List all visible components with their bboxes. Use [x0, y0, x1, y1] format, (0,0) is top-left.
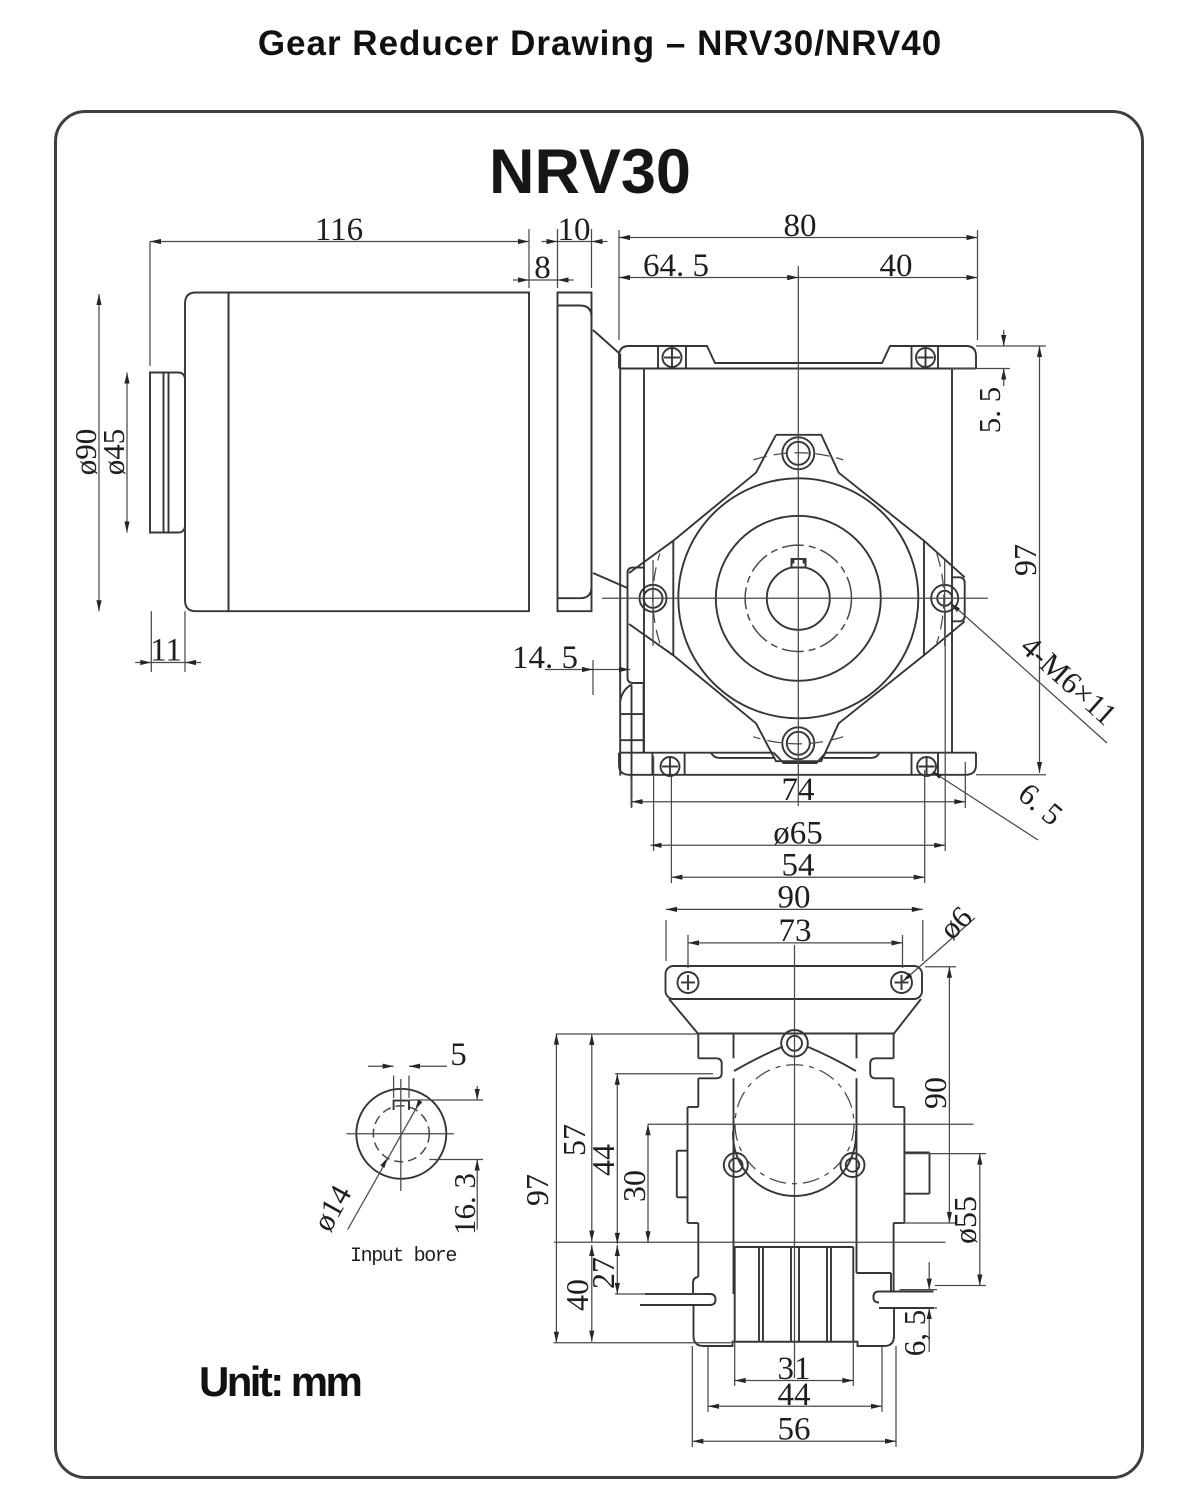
- svg-text:90: 90: [917, 1077, 953, 1109]
- svg-text:6, 5: 6, 5: [897, 1310, 932, 1357]
- svg-text:16. 3: 16. 3: [447, 1173, 482, 1235]
- svg-text:ø55: ø55: [947, 1196, 983, 1244]
- svg-text:Input bore: Input bore: [350, 1245, 456, 1268]
- svg-text:8: 8: [534, 250, 551, 286]
- svg-text:116: 116: [315, 212, 363, 248]
- svg-text:44: 44: [778, 1377, 811, 1413]
- svg-text:97: 97: [519, 1174, 555, 1206]
- svg-text:40: 40: [880, 248, 913, 284]
- svg-text:97: 97: [1007, 544, 1043, 576]
- svg-text:64. 5: 64. 5: [643, 248, 709, 284]
- svg-text:30: 30: [616, 1170, 652, 1202]
- svg-text:5: 5: [450, 1037, 467, 1073]
- svg-text:ø65: ø65: [773, 816, 823, 852]
- svg-text:54: 54: [782, 848, 815, 884]
- svg-text:5. 5: 5. 5: [972, 387, 1007, 434]
- svg-text:74: 74: [782, 772, 815, 808]
- svg-text:10: 10: [558, 212, 591, 248]
- svg-text:14. 5: 14. 5: [512, 640, 578, 676]
- svg-text:ø45: ø45: [96, 429, 131, 476]
- svg-text:80: 80: [784, 208, 817, 244]
- svg-text:56: 56: [778, 1412, 811, 1448]
- svg-text:90: 90: [778, 880, 811, 916]
- svg-text:73: 73: [779, 913, 812, 949]
- svg-text:11: 11: [150, 633, 182, 669]
- svg-text:40: 40: [559, 1279, 595, 1311]
